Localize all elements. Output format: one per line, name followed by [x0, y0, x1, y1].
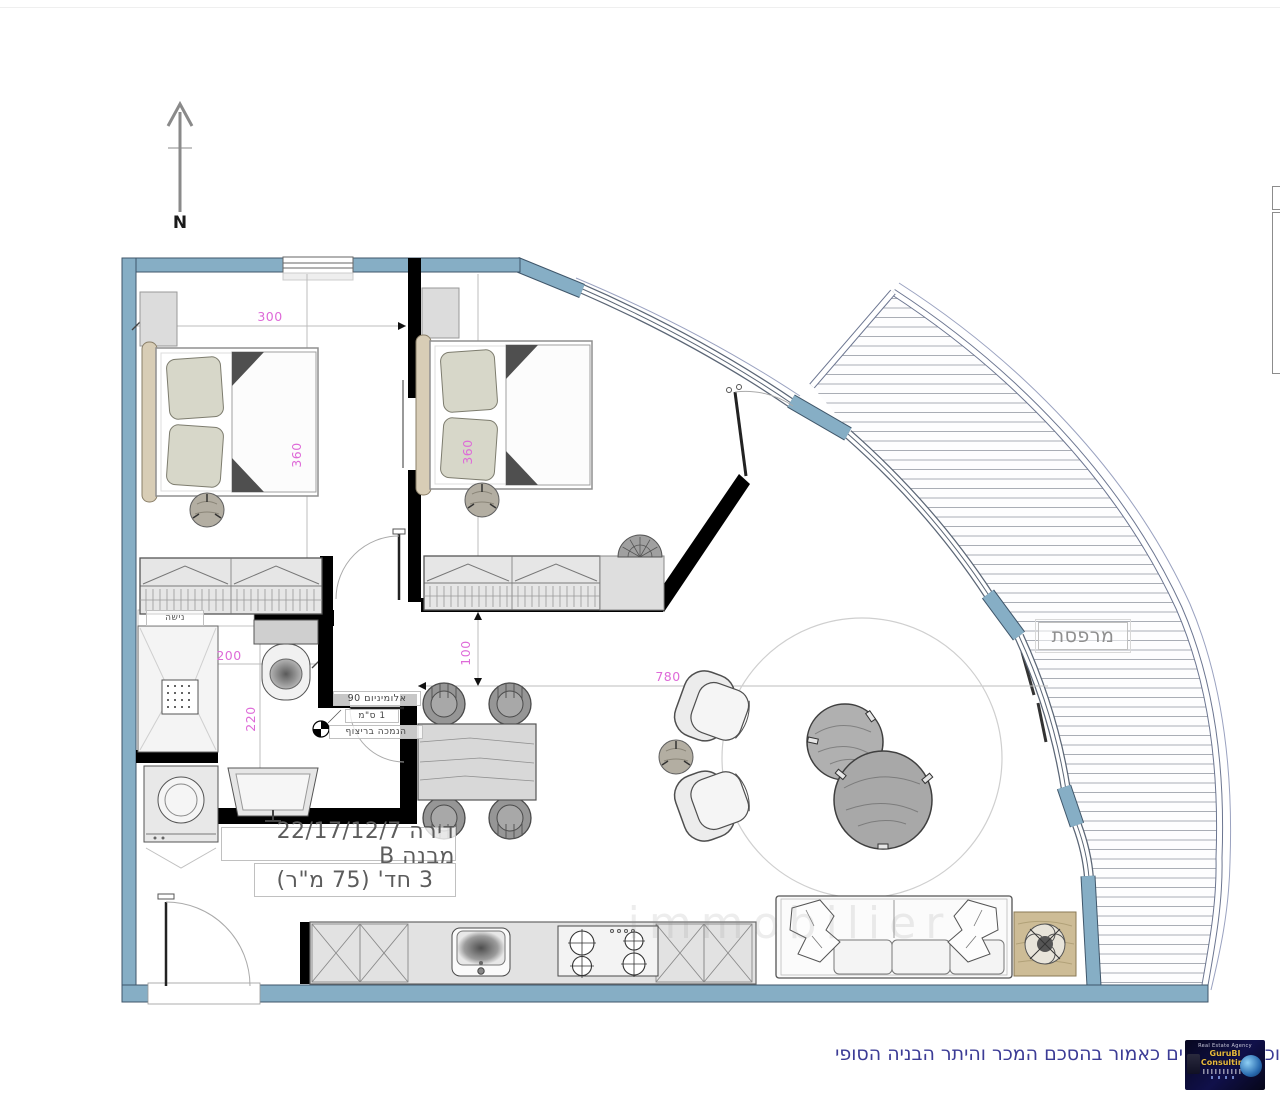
side-table-round — [659, 740, 693, 774]
nightstand-1 — [190, 493, 224, 527]
corner-cabinet — [600, 556, 664, 610]
bathroom-east-wall-lower — [400, 694, 417, 820]
dim-living-width: 780 — [655, 669, 680, 684]
floorplan-page: N 300 360 360 100 780 200 220 דירה 22/17… — [0, 0, 1280, 1107]
watermark-text: immobilier — [480, 898, 1100, 949]
apartment-title-line1: דירה 22/17/12/7 מבנה B — [221, 827, 456, 861]
nightstand-2 — [465, 483, 499, 517]
entry-diagonal-wall — [653, 474, 750, 612]
bedroom2 — [403, 288, 664, 610]
shower — [138, 626, 218, 752]
dim-bathroom-depth: 220 — [243, 706, 258, 731]
cabinet-2 — [422, 288, 459, 338]
logo-decoration-dots — [1211, 1076, 1239, 1079]
bedroom1 — [140, 292, 405, 614]
dining-area — [418, 683, 536, 839]
cabinet-1 — [140, 292, 177, 346]
cropped-panel-artifact-small — [1272, 186, 1280, 210]
toilet — [254, 620, 318, 700]
dining-chair — [423, 683, 465, 725]
dining-table — [418, 724, 536, 800]
bedroom1-door — [336, 529, 405, 600]
north-arrow-icon: N — [168, 104, 192, 233]
agency-logo: Real Estate Agency GuruBI Consulting — [1185, 1040, 1265, 1090]
shower-drain — [162, 680, 198, 714]
dim-bedroom1-depth: 360 — [289, 442, 304, 467]
washing-machine — [144, 766, 218, 868]
balcony-label: מרפסת — [1038, 622, 1128, 650]
niche-label: נישה — [146, 610, 204, 626]
footer-caption: ים כאמור בהסכם המכר והיתר הבניה הסופי — [700, 1041, 1183, 1067]
pouf-stool — [618, 535, 662, 557]
globe-icon — [1240, 1055, 1262, 1077]
dim-bathroom-width: 200 — [216, 648, 241, 663]
door-handle-icon — [158, 894, 174, 899]
apartment-title-line2: 3 חד' (75 מ"ר) — [254, 863, 456, 897]
bathroom-east-wall-upper — [318, 610, 333, 706]
threshold-note-line1: אלומיניום 90 — [333, 691, 421, 706]
north-label: N — [173, 213, 187, 233]
bottom-wall — [122, 985, 1208, 1002]
window-top — [283, 257, 353, 273]
vanity-sink — [228, 768, 318, 822]
threshold-note-line2: 1 ס"מ — [345, 709, 399, 723]
bed-2 — [416, 335, 592, 495]
cropped-panel-artifact-tall — [1272, 212, 1280, 374]
dim-top-width: 300 — [257, 309, 282, 324]
logo-photo-thumb — [1187, 1054, 1200, 1074]
threshold-note-line3: הנמכה בריצוף — [329, 725, 423, 739]
coffee-table-2 — [834, 751, 933, 849]
bed-1 — [142, 342, 318, 502]
dim-corridor: 100 — [458, 640, 473, 665]
dining-chair — [489, 797, 531, 839]
dim-bedroom2-depth: 360 — [460, 439, 475, 464]
wardrobe-1 — [140, 558, 322, 614]
window-sill — [283, 273, 353, 280]
dining-chair — [489, 683, 531, 725]
left-wall — [122, 258, 136, 1000]
entrance-door — [148, 894, 260, 1004]
page-top-hairline — [0, 7, 1280, 8]
wardrobe-2 — [424, 556, 600, 610]
armchair-1 — [669, 665, 759, 753]
